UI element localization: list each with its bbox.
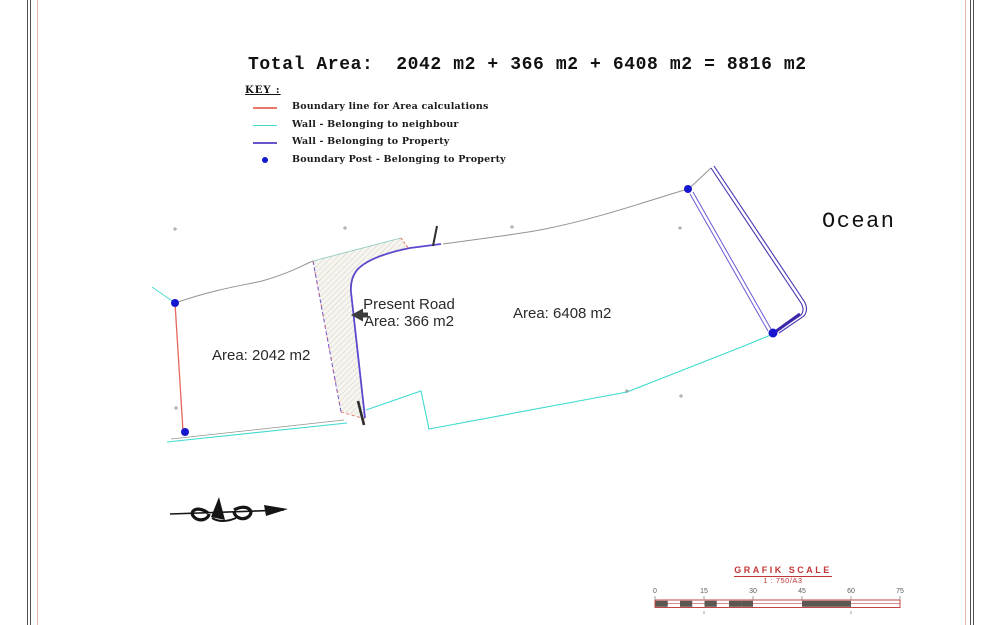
neighbour-wall-bottom-east <box>366 334 773 429</box>
neighbour-wall-top-left-stub <box>152 287 175 303</box>
survey-sheet: { "sheet": { "title": "Total Area: 2042 … <box>0 0 1000 625</box>
boundary-post-sw <box>181 428 189 436</box>
graphic-scale-ratio: 1 : 750/A3 <box>703 576 863 585</box>
scale-tick-label: 15 <box>697 588 711 595</box>
scale-tick-label: 75 <box>893 588 907 595</box>
ocean-label: Ocean <box>822 209 896 234</box>
north-arrow-ornament <box>170 497 288 521</box>
scale-tick-label: 30 <box>746 588 760 595</box>
parcel-left-area-label: Area: 2042 m2 <box>212 347 310 364</box>
wall-tick-top <box>433 226 437 246</box>
boundary-post-nw <box>171 299 179 307</box>
road-area-label: Area: 366 m2 <box>357 313 461 330</box>
scale-tick-label: 45 <box>795 588 809 595</box>
road-name: Present Road <box>357 296 461 313</box>
boundary-line-red-west <box>175 303 183 431</box>
property-wall-inner-1 <box>690 194 768 331</box>
scale-tick-label: 60 <box>844 588 858 595</box>
road-right-property-wall <box>351 244 441 418</box>
property-wall-outer-2 <box>714 166 807 333</box>
boundary-posts <box>171 185 778 436</box>
neighbour-wall-bottom-left <box>167 423 347 442</box>
parcel-left-bottom-survey-line <box>171 420 344 439</box>
property-wall-outer-1 <box>711 168 803 331</box>
east-wall-lane <box>690 166 807 333</box>
boundary-post-ne <box>684 185 692 193</box>
scale-tick-label: 0 <box>648 588 662 595</box>
road-label: Present Road Area: 366 m2 <box>357 296 461 330</box>
parcel-left-top-boundary <box>175 261 313 303</box>
boundary-post-se <box>769 329 778 338</box>
graphic-scale-bar <box>655 596 900 614</box>
parcel-right-top-boundary <box>443 168 711 244</box>
graphic-scale-title: GRAFIK SCALE <box>703 565 863 575</box>
property-wall-thick-segment <box>775 314 800 332</box>
site-plan-svg <box>0 0 1000 625</box>
parcel-right-area-label: Area: 6408 m2 <box>513 305 611 322</box>
property-wall-inner-2 <box>693 192 771 329</box>
